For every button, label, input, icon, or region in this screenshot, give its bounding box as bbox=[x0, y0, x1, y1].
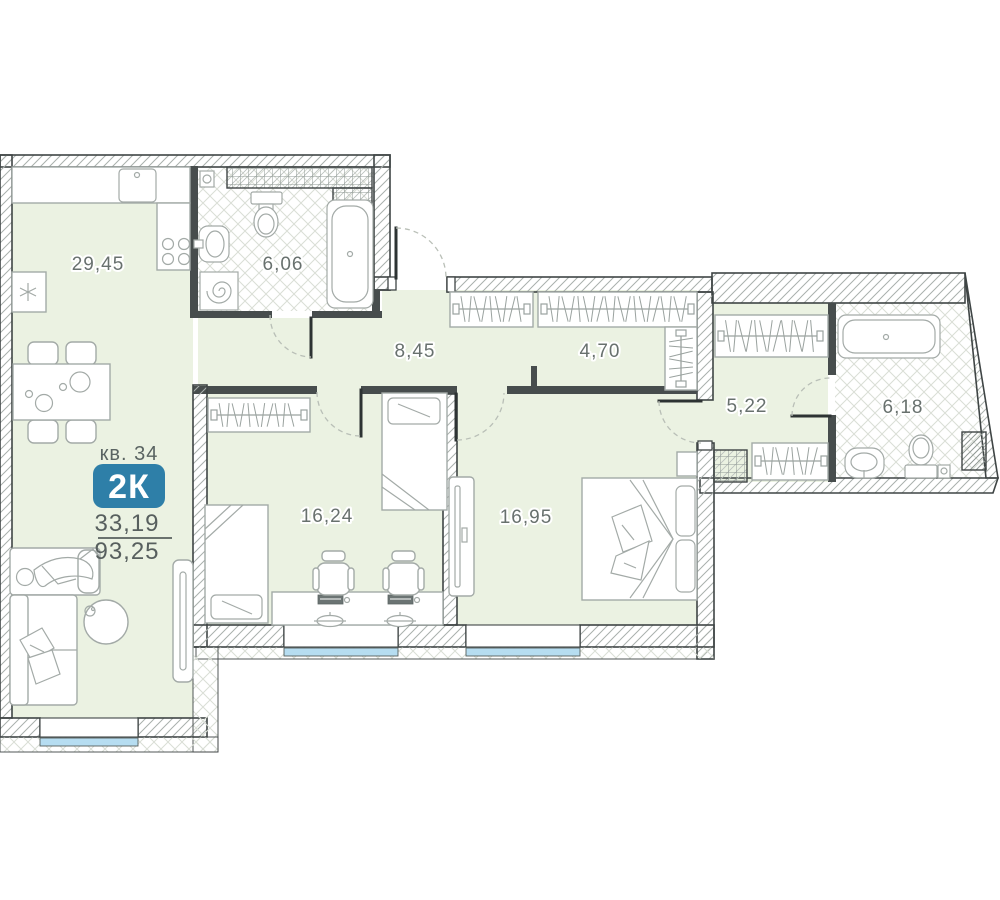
wall-wing-top bbox=[447, 277, 712, 292]
nightstand bbox=[677, 452, 697, 476]
bathtub-2 bbox=[838, 315, 940, 358]
type-badge-label: 2К bbox=[108, 468, 150, 506]
label-corridor2: 5,22 bbox=[727, 396, 768, 417]
water-heater bbox=[200, 171, 214, 187]
wall-living-bottom-a bbox=[0, 718, 40, 737]
entrance-jamb-right bbox=[447, 277, 455, 292]
washbasin-1 bbox=[194, 226, 229, 262]
window-bedroom1 bbox=[284, 625, 398, 656]
duct-bathroom2 bbox=[962, 432, 986, 470]
label-bathroom2: 6,18 bbox=[883, 397, 924, 418]
bed-single-left bbox=[205, 505, 268, 623]
washing-machine bbox=[200, 272, 238, 310]
kitchen-counter-top bbox=[12, 167, 190, 203]
wall-hall-bedrooms-a bbox=[193, 386, 317, 394]
window-bedroom2 bbox=[466, 625, 580, 656]
window-living bbox=[40, 718, 138, 746]
wall-bath2-left-b bbox=[828, 415, 836, 482]
hallway-floor bbox=[198, 318, 382, 386]
tv-panel bbox=[173, 560, 193, 682]
bathtub-1 bbox=[327, 200, 373, 308]
area-living-value: 33,19 bbox=[94, 510, 159, 537]
floor-plan-drawing: 29,45 6,06 8,45 4,70 5,22 6,18 16,24 16,… bbox=[0, 0, 1000, 900]
fridge bbox=[12, 272, 46, 312]
double-bed bbox=[582, 478, 697, 600]
entrance-door bbox=[396, 228, 446, 278]
sill-bedrooms bbox=[196, 647, 714, 659]
wall-bath1-bottom-b bbox=[312, 311, 382, 318]
wall-bath2-left-a bbox=[828, 303, 836, 375]
wall-bedroom-bottom-a bbox=[193, 625, 284, 647]
wall-bedroom-bottom-c bbox=[580, 625, 714, 647]
washbasin-2 bbox=[845, 448, 884, 478]
desk bbox=[272, 592, 443, 627]
wall-top bbox=[0, 155, 390, 167]
area-total-value: 93,25 bbox=[94, 538, 159, 565]
threshold-3 bbox=[697, 400, 713, 443]
floor-plan-page: 29,45 6,06 8,45 4,70 5,22 6,18 16,24 16,… bbox=[0, 0, 1000, 900]
wall-block-right bbox=[374, 155, 390, 290]
apartment-number: кв. 34 bbox=[100, 443, 159, 465]
wall-bedroom-bottom-b bbox=[398, 625, 466, 647]
threshold-2 bbox=[457, 386, 507, 394]
wall-corridor2-left-upper bbox=[697, 292, 713, 400]
wall-bath1-bottom-a bbox=[192, 311, 272, 318]
bed-single-right bbox=[382, 393, 447, 510]
wardrobe-tall bbox=[449, 477, 474, 596]
wall-fin bbox=[531, 366, 537, 388]
label-bedroom1: 16,24 bbox=[301, 506, 354, 527]
label-kitchen-living: 29,45 bbox=[72, 254, 125, 275]
duct-corridor2 bbox=[714, 450, 747, 482]
label-hallway: 8,45 bbox=[395, 341, 436, 362]
coffee-table bbox=[84, 600, 128, 644]
kitchen-sink bbox=[119, 169, 156, 202]
parapet-corner bbox=[193, 647, 218, 752]
wall-wing-top-thick bbox=[712, 273, 965, 303]
label-bedroom2: 16,95 bbox=[500, 507, 553, 528]
threshold-1 bbox=[317, 386, 361, 394]
label-bathroom1: 6,06 bbox=[263, 254, 304, 275]
label-corridor: 4,70 bbox=[580, 341, 621, 362]
